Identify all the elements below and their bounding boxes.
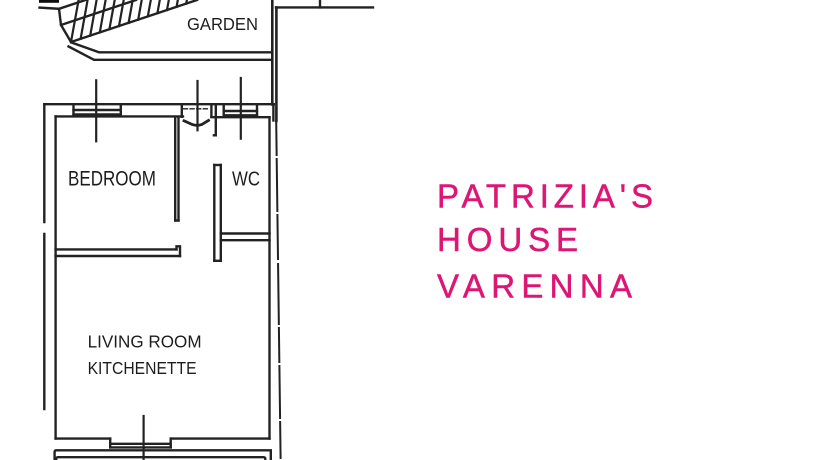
svg-text:KITCHENETTE: KITCHENETTE [88,358,197,378]
svg-text:GARDEN: GARDEN [187,13,258,34]
svg-text:LIVING ROOM: LIVING ROOM [88,331,202,352]
svg-text:BEDROOM: BEDROOM [68,168,156,191]
svg-text:VARENNA: VARENNA [437,268,632,305]
svg-text:HOUSE: HOUSE [437,221,578,258]
svg-text:WC: WC [232,167,260,190]
svg-text:PATRIZIA'S: PATRIZIA'S [437,178,653,215]
